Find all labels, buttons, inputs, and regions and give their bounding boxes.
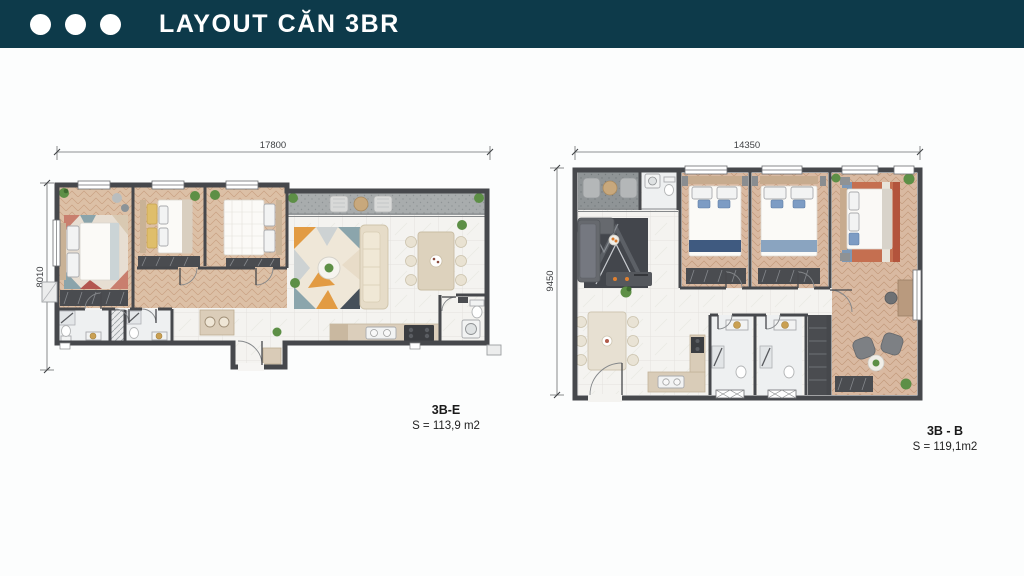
cooktop	[404, 325, 434, 341]
basin	[734, 322, 741, 329]
pillow	[791, 187, 813, 199]
floorplan-3be-svg: 17800 8010	[30, 120, 510, 440]
bed-runner	[761, 240, 817, 252]
plant-icon	[627, 287, 632, 292]
dining-area	[576, 312, 639, 370]
armchair	[620, 178, 637, 198]
basin	[782, 322, 789, 329]
pillow	[717, 187, 737, 199]
toilet	[665, 185, 674, 196]
louvre-window	[716, 390, 744, 398]
unit-name: 3B - B	[927, 424, 963, 438]
nightstand	[840, 177, 850, 185]
armchair	[583, 178, 600, 198]
lounge-chair	[330, 196, 348, 212]
dimension-width-3bb: 14350	[572, 140, 923, 160]
toilet	[130, 328, 139, 339]
pillow	[849, 213, 859, 231]
bed-runner	[689, 240, 741, 252]
toilet	[62, 326, 71, 337]
ac-ledge	[487, 345, 501, 355]
unit-label-3be: 3B-E S = 113,9 m2	[412, 403, 480, 432]
pillow	[771, 200, 783, 208]
pillow	[692, 187, 712, 199]
pouf	[112, 193, 122, 203]
plant-icon	[904, 174, 915, 185]
pillow	[264, 204, 275, 226]
living-room	[290, 225, 388, 309]
plant-icon	[190, 191, 200, 201]
dimension-width-3be: 17800	[54, 140, 493, 160]
dining-chair	[456, 237, 467, 248]
plant-icon	[64, 189, 69, 194]
plant-icon	[290, 278, 300, 288]
dim-height-label: 9450	[545, 270, 556, 291]
nightstand	[682, 176, 688, 186]
header-dot-icon	[100, 14, 121, 35]
plant-icon	[288, 193, 298, 203]
plant-icon	[273, 328, 282, 337]
pillow	[264, 230, 275, 252]
bed-headboard	[60, 223, 66, 280]
bed-headboard	[276, 200, 282, 255]
dimension-height-3bb: 9450	[545, 165, 564, 398]
wardrobe	[138, 256, 200, 267]
header-bar: LAYOUT CĂN 3BR	[0, 0, 1024, 48]
plant-icon	[901, 379, 912, 390]
shoe-cabinet	[263, 348, 281, 364]
pillow	[147, 204, 157, 224]
floorplan-3bb: 14350 9450	[530, 120, 1024, 460]
pillow	[849, 233, 859, 245]
dining-chair	[456, 275, 467, 286]
pillow	[764, 187, 786, 199]
pillow	[849, 192, 859, 210]
pillow	[698, 200, 710, 208]
pillow	[147, 228, 157, 248]
fridge	[330, 324, 348, 342]
unit-area: S = 119,1m2	[913, 441, 978, 453]
bed-headboard	[688, 176, 742, 184]
basin	[90, 333, 96, 339]
unit-area: S = 113,9 m2	[412, 420, 480, 432]
toilet	[736, 366, 746, 378]
floorplan-3be: 17800 8010	[30, 120, 510, 440]
lounge-chair	[374, 196, 392, 212]
dining-chair	[628, 355, 639, 366]
dining-chair	[406, 256, 417, 267]
dining-chair	[628, 336, 639, 347]
pillow	[793, 200, 805, 208]
pillow	[159, 206, 168, 224]
bed-headboard	[840, 188, 847, 250]
dim-width-label: 17800	[260, 140, 286, 151]
dim-width-label: 14350	[734, 140, 760, 151]
basin	[156, 333, 162, 339]
plant-icon	[210, 190, 220, 200]
toilet	[472, 306, 482, 318]
floorplan-3bb-svg: 14350 9450	[530, 120, 1024, 460]
bed-throw	[110, 223, 119, 280]
pouf	[121, 204, 129, 212]
plant-icon	[873, 360, 880, 367]
plant-icon	[457, 220, 467, 230]
toilet	[784, 366, 794, 378]
balcony-table	[603, 181, 617, 195]
bed-throw	[182, 200, 192, 253]
washer	[205, 317, 215, 327]
kitchen	[330, 324, 440, 342]
pillow	[718, 200, 730, 208]
closet-shelves	[808, 315, 828, 395]
louvre-window	[768, 390, 796, 398]
dining-chair	[406, 237, 417, 248]
pillow	[159, 228, 168, 246]
duct-shaft	[110, 310, 125, 343]
pillow	[67, 226, 79, 250]
header-dot-icon	[30, 14, 51, 35]
plant-icon	[474, 193, 484, 203]
unit-label-3bb: 3B - B S = 119,1m2	[913, 424, 978, 453]
dining-chair	[628, 317, 639, 328]
nightstand	[840, 253, 850, 261]
terrace-table	[354, 197, 368, 211]
desk	[898, 280, 914, 316]
plant-icon	[325, 264, 334, 273]
plant-icon	[832, 174, 841, 183]
bed-headboard	[140, 200, 146, 253]
wardrobe	[758, 268, 820, 284]
nightstand	[820, 176, 826, 186]
bed	[224, 200, 264, 255]
window	[894, 166, 914, 174]
living-room	[578, 218, 652, 298]
dining-chair	[406, 275, 417, 286]
desk-chair	[885, 292, 897, 304]
dimension-height-3be: 8010	[35, 180, 54, 373]
unit-name: 3B-E	[432, 403, 460, 417]
page-title: LAYOUT CĂN 3BR	[159, 10, 400, 39]
pillow	[67, 253, 79, 277]
bed-throw	[882, 189, 892, 249]
header-dot-icon	[65, 14, 86, 35]
dining-chair	[456, 256, 467, 267]
nightstand	[742, 176, 748, 186]
nightstand	[752, 176, 758, 186]
dryer	[219, 317, 229, 327]
bed-headboard	[760, 176, 818, 184]
